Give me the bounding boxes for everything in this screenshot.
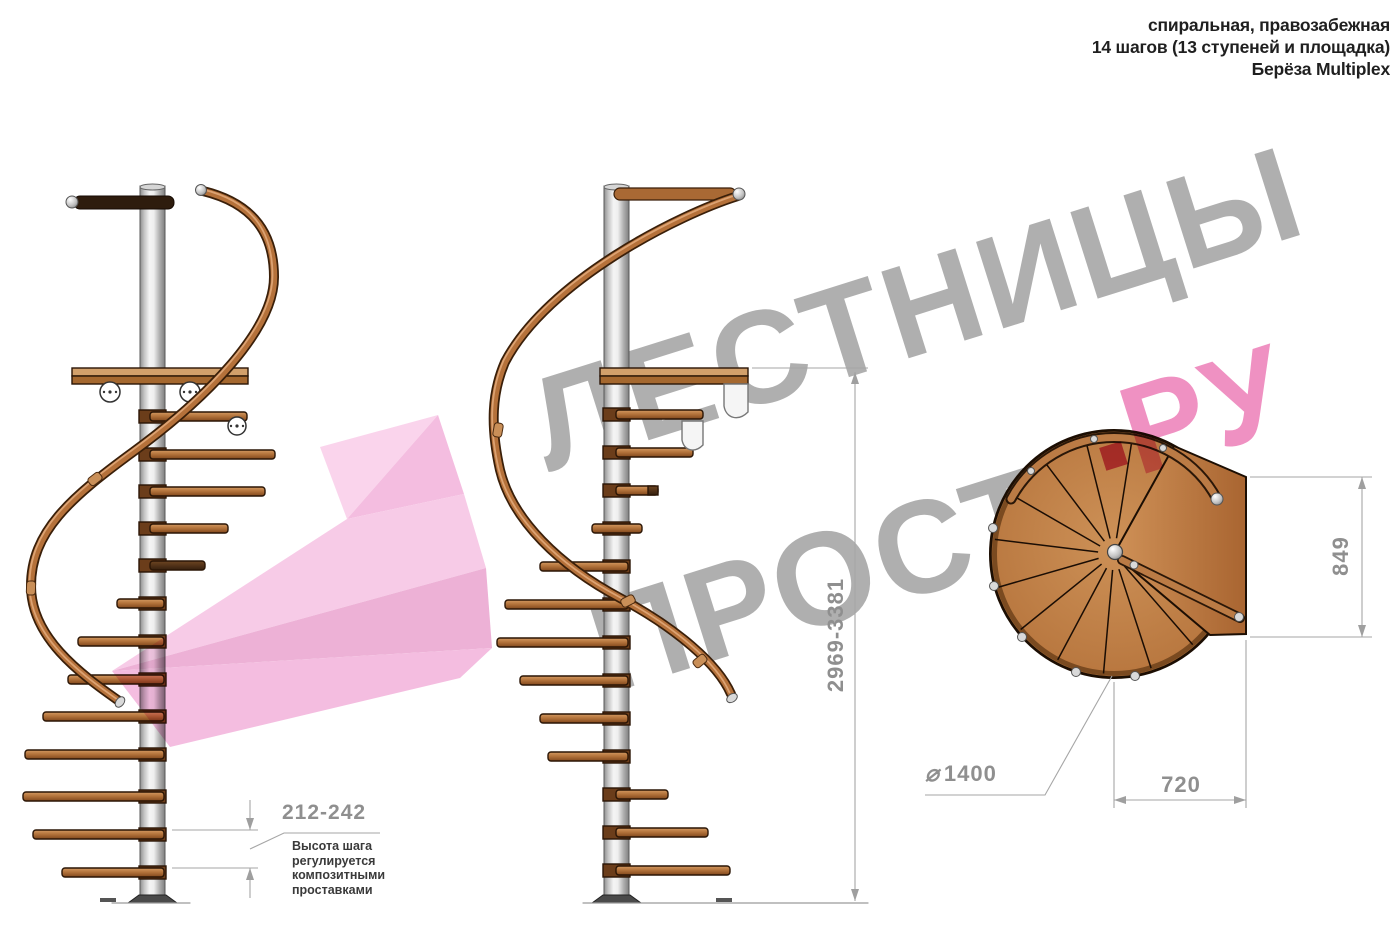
drawing-page: ЛЕСТНИЦЫ ПРОСТО (0, 0, 1400, 944)
stair-material: Берёза Multiplex (1092, 58, 1390, 80)
pole-top-ball (1108, 545, 1123, 560)
dim-landing-depth: 849 (1328, 467, 1354, 645)
dim-diameter: ⌀1400 (925, 760, 1055, 787)
base-flange (128, 895, 177, 903)
dim-total-height: 2969-3381 (823, 545, 849, 725)
top-landing (600, 368, 748, 384)
dim-step-height: 212-242 (282, 801, 402, 825)
staircase-side-view-left (23, 184, 275, 903)
diameter-icon: ⌀ (925, 760, 940, 786)
stair-steps: 14 шагов (13 ступеней и площадка) (1092, 36, 1390, 58)
staircase-technical-drawing: ЛЕСТНИЦЫ ПРОСТО (0, 0, 1400, 944)
dim-landing-width: 720 (1130, 772, 1232, 798)
top-guard-rail (74, 196, 174, 209)
landing-bracket (724, 384, 748, 418)
title-block: спиральная, правозабежная 14 шагов (13 с… (1092, 14, 1390, 80)
watermark-ribbon-arrow (112, 415, 492, 747)
base-flange (592, 895, 641, 903)
step-bracket (682, 421, 703, 450)
dim-step-height-note: Высота шага регулируется композитными пр… (292, 839, 422, 897)
diameter-value: 1400 (944, 761, 997, 786)
stair-type: спиральная, правозабежная (1092, 14, 1390, 36)
